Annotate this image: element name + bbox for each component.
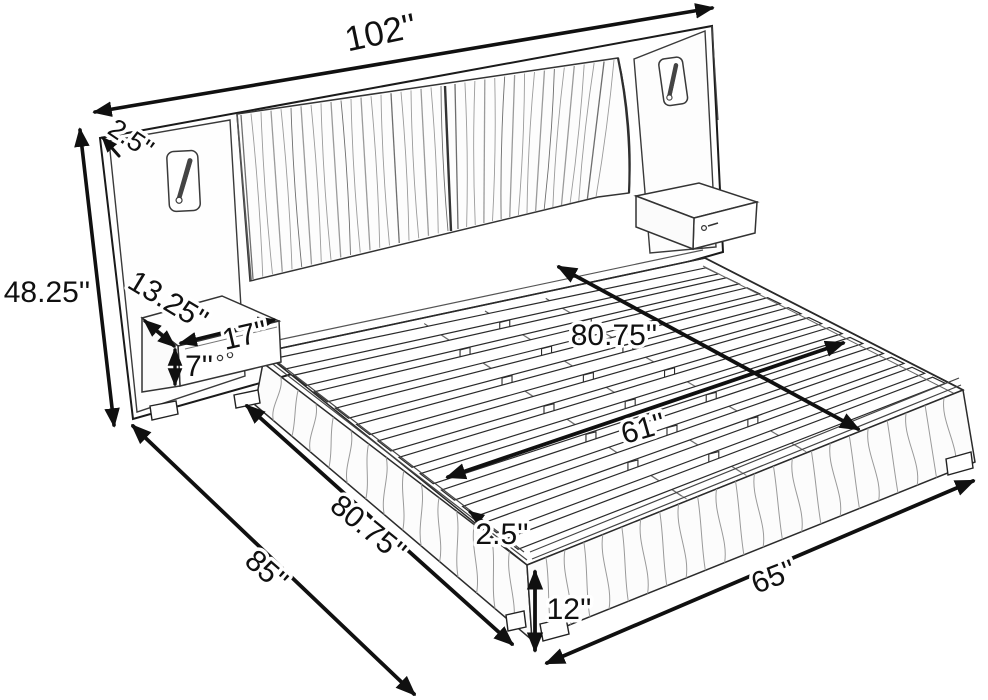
dim-label-total-length: 85'' [238, 544, 293, 598]
left-wall-lamp-icon [167, 150, 201, 212]
dim-headboard-height: 48.25'' [4, 130, 114, 425]
dim-rail-thickness: 2.5'' [470, 512, 529, 551]
dim-label-base-width: 65'' [747, 554, 801, 601]
dim-label-slat-length: 80.75'' [571, 319, 658, 352]
drawer-knob [702, 226, 707, 231]
bed-dimension-diagram: 102'' 2.5'' 48.25'' 13.25'' 17'' 7'' 80.… [0, 0, 988, 700]
dim-label-headboard-width: 102'' [341, 6, 419, 59]
dim-label-nightstand-height: 7'' [185, 350, 213, 383]
drawer-knob [217, 355, 222, 360]
bed-leg-front-small [506, 611, 526, 631]
diagram-canvas: 102'' 2.5'' 48.25'' 13.25'' 17'' 7'' 80.… [0, 0, 988, 700]
dim-label-headboard-height: 48.25'' [4, 276, 91, 309]
dim-label-base-height: 12'' [547, 593, 592, 626]
dim-label-rail-thickness: 2.5'' [475, 518, 528, 551]
